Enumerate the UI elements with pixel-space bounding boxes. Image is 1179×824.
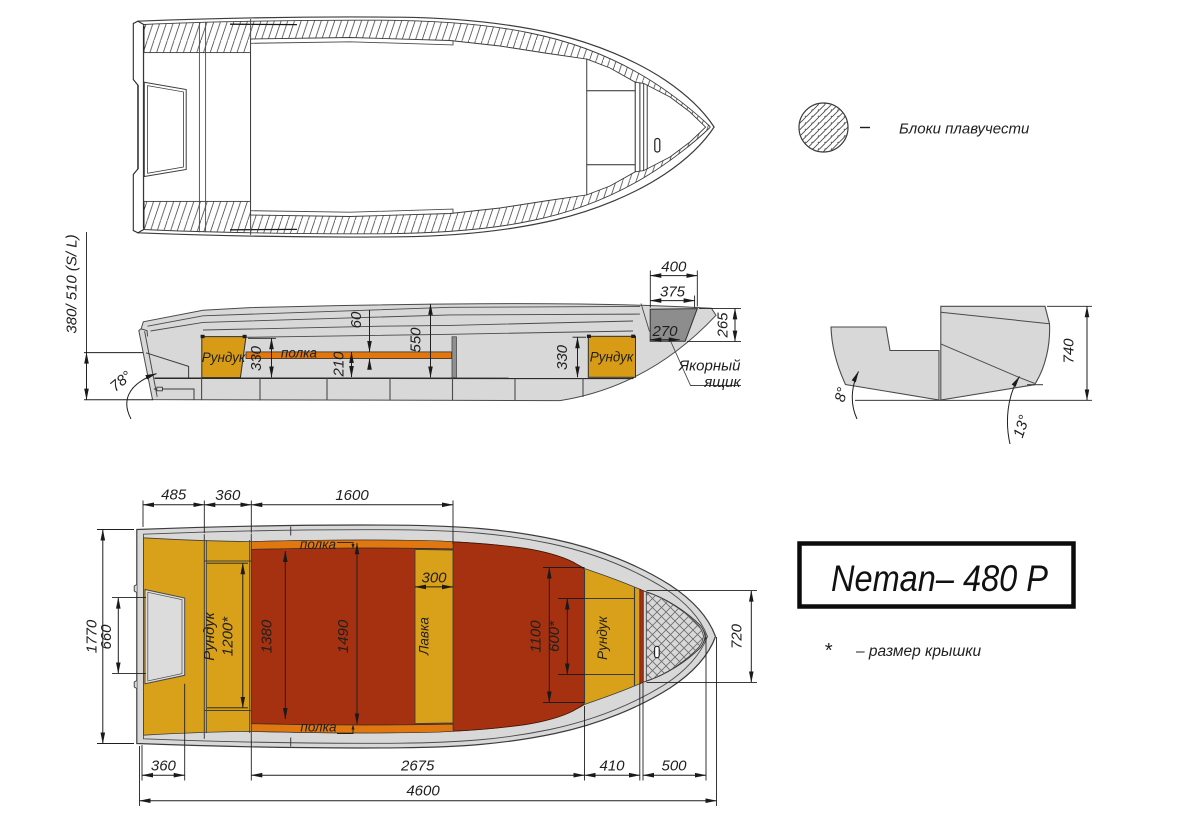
svg-text:410: 410: [599, 757, 625, 774]
svg-text:330: 330: [554, 344, 571, 370]
svg-text:Блоки плавучести: Блоки плавучести: [899, 121, 1030, 138]
svg-text:полка: полка: [300, 537, 337, 552]
svg-text:360: 360: [215, 487, 241, 504]
svg-text:Рундук: Рундук: [590, 349, 634, 364]
svg-text:Рундук: Рундук: [595, 616, 610, 660]
svg-text:1200*: 1200*: [220, 616, 237, 656]
svg-text:1490: 1490: [335, 619, 352, 653]
svg-text:300: 300: [421, 570, 447, 587]
svg-text:Рундук: Рундук: [202, 350, 246, 365]
svg-text:2675: 2675: [400, 757, 435, 774]
svg-text:740: 740: [1061, 338, 1078, 364]
svg-text:550: 550: [408, 327, 425, 353]
svg-text:1380: 1380: [259, 619, 276, 653]
svg-text:360: 360: [151, 757, 177, 774]
svg-text:Лавка: Лавка: [417, 617, 432, 656]
svg-text:– размер крышки: – размер крышки: [855, 643, 982, 660]
svg-text:485: 485: [161, 487, 187, 504]
svg-text:400: 400: [661, 259, 687, 276]
svg-text:265: 265: [715, 312, 732, 339]
svg-text:660: 660: [98, 624, 115, 650]
svg-text:500: 500: [661, 757, 687, 774]
svg-text:1100: 1100: [528, 620, 545, 653]
svg-text:полка: полка: [300, 720, 337, 735]
svg-text:210: 210: [331, 351, 348, 378]
svg-text:720: 720: [729, 623, 746, 649]
svg-text:полка: полка: [281, 346, 318, 361]
svg-text:ящик: ящик: [703, 374, 741, 391]
svg-text:600*: 600*: [546, 620, 563, 652]
svg-text:Neman– 480 P: Neman– 480 P: [831, 558, 1048, 599]
svg-text:60: 60: [348, 311, 365, 328]
svg-text:380/ 510 (S/ L): 380/ 510 (S/ L): [64, 234, 81, 333]
svg-text:330: 330: [248, 345, 265, 371]
svg-text:Рундук: Рундук: [201, 611, 218, 660]
svg-text:375: 375: [660, 284, 686, 301]
svg-text:Якорный: Якорный: [678, 358, 741, 375]
svg-text:1600: 1600: [335, 487, 369, 504]
svg-text:*: *: [824, 640, 833, 662]
svg-text:4600: 4600: [406, 783, 440, 800]
svg-text:270: 270: [651, 323, 678, 340]
